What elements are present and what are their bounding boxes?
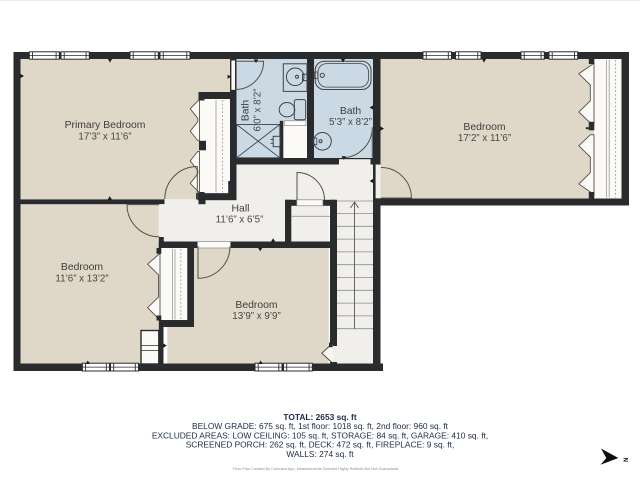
svg-text:11’6” x 13’2”: 11’6” x 13’2” <box>55 273 108 284</box>
svg-text:Primary Bedroom: Primary Bedroom <box>65 120 146 131</box>
svg-text:Floor Plan Created By Cubicasa: Floor Plan Created By Cubicasa App, Meas… <box>233 467 400 471</box>
svg-text:Bedroom: Bedroom <box>463 122 505 133</box>
svg-text:WALLS: 274 sq. ft: WALLS: 274 sq. ft <box>286 449 354 459</box>
svg-text:17’3” x 11’6”: 17’3” x 11’6” <box>78 132 131 143</box>
svg-text:Hall: Hall <box>232 204 250 215</box>
svg-text:N: N <box>622 458 628 462</box>
svg-text:Bedroom: Bedroom <box>61 262 103 273</box>
svg-text:11’6” x 6’5”: 11’6” x 6’5” <box>216 215 264 226</box>
svg-text:Bath: Bath <box>340 106 362 117</box>
svg-text:6’0” x 8’2”: 6’0” x 8’2” <box>252 88 263 131</box>
svg-text:Bath: Bath <box>241 100 252 122</box>
svg-text:13’9” x 9’9”: 13’9” x 9’9” <box>232 311 280 322</box>
svg-text:17’2” x 11’6”: 17’2” x 11’6” <box>458 133 511 144</box>
svg-text:Bedroom: Bedroom <box>235 300 277 311</box>
svg-text:5’3” x 8’2”: 5’3” x 8’2” <box>329 117 372 128</box>
